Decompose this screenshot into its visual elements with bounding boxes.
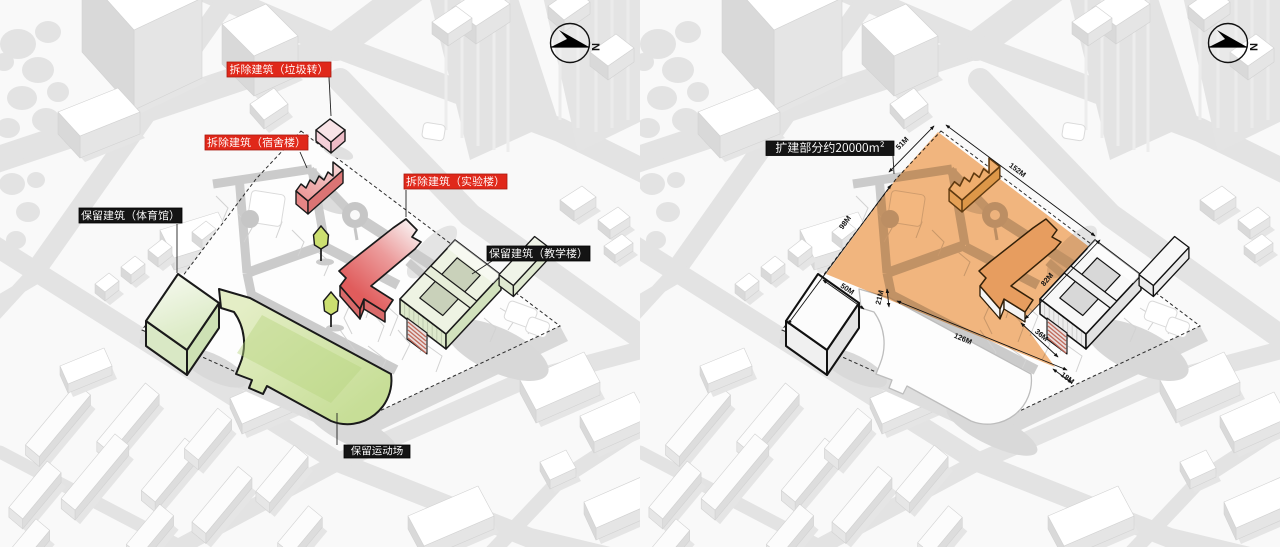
svg-text:N: N: [589, 43, 601, 51]
svg-text:N: N: [1247, 43, 1259, 51]
